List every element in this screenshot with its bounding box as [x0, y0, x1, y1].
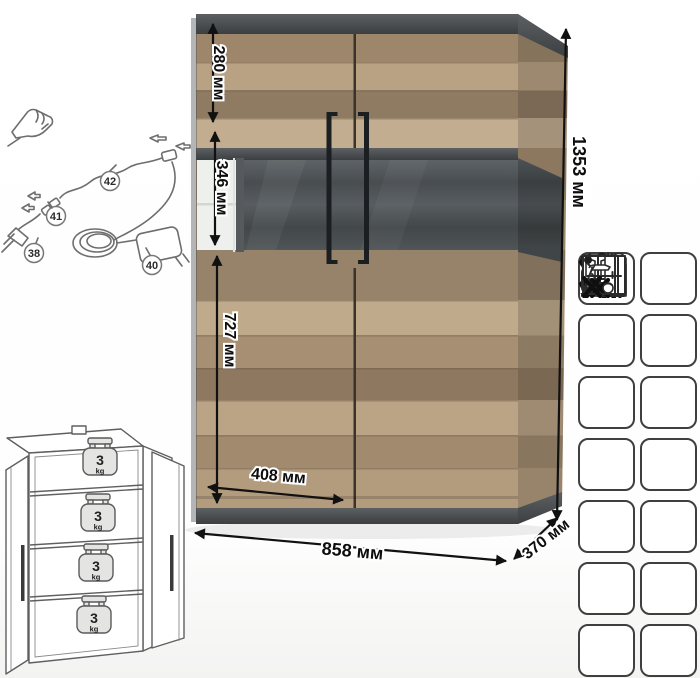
- no-heavy-load-icon: [578, 252, 628, 298]
- svg-text:40: 40: [146, 260, 158, 272]
- open-glass-door-edge: [236, 158, 244, 252]
- care-icon-heat-distance: ≥1M: [578, 562, 635, 615]
- insert-arrows: [150, 135, 190, 150]
- dim-label-width: 858 мм: [321, 538, 384, 563]
- care-icon-ventilate: 21: [640, 562, 697, 615]
- shelf-load-diagram: [6, 426, 184, 674]
- dim-label-top-section: 280 мм: [210, 46, 227, 101]
- cabinet-middle-band: [196, 148, 518, 160]
- care-icon-no-heavy-load: [640, 624, 697, 677]
- svg-text:42: 42: [104, 176, 116, 188]
- cabinet-base: [196, 508, 518, 524]
- dim-label-height: 1353 мм: [569, 136, 589, 208]
- dim-label-depth: 370 мм: [519, 516, 573, 563]
- cable-coil: [73, 229, 117, 257]
- drawn-top-switch: [72, 426, 86, 434]
- upper-door-seam: [354, 34, 357, 148]
- care-icon-temperature: +10...+25°C: [578, 376, 635, 429]
- care-icon-no-abrasive: [578, 438, 635, 491]
- care-icon-no-standing: [640, 314, 697, 367]
- care-icon-no-sitting: [578, 314, 635, 367]
- care-icon-grid: 60-70%: [578, 252, 697, 677]
- care-icon-no-sunlight: [640, 376, 697, 429]
- right-door-handle: [364, 112, 369, 264]
- led-wiring-diagram: 42 41 38 40: [2, 110, 190, 275]
- cabinet-left-edge: [191, 18, 197, 522]
- drawn-left-door-open: [6, 456, 28, 674]
- dim-label-bottom-section: 727 мм: [221, 313, 238, 368]
- care-icon-no-wet-cleaning: [640, 438, 697, 491]
- care-icon-humidity: 60-70%: [640, 252, 697, 305]
- care-icon-no-jumping: [578, 500, 635, 553]
- cabinet-photo: [185, 14, 568, 539]
- cabinet-top-band: [196, 14, 518, 34]
- care-icon-transport-position: [640, 500, 697, 553]
- left-door-handle: [327, 112, 332, 264]
- care-icon-no-dragging: [578, 624, 635, 677]
- lower-door-seam: [354, 268, 357, 508]
- hand-icon: [12, 110, 53, 139]
- product-spec-sheet: 3 kg: [0, 0, 700, 678]
- svg-text:41: 41: [50, 211, 62, 223]
- dim-label-glass-section: 346 мм: [213, 161, 230, 216]
- svg-text:38: 38: [28, 248, 40, 260]
